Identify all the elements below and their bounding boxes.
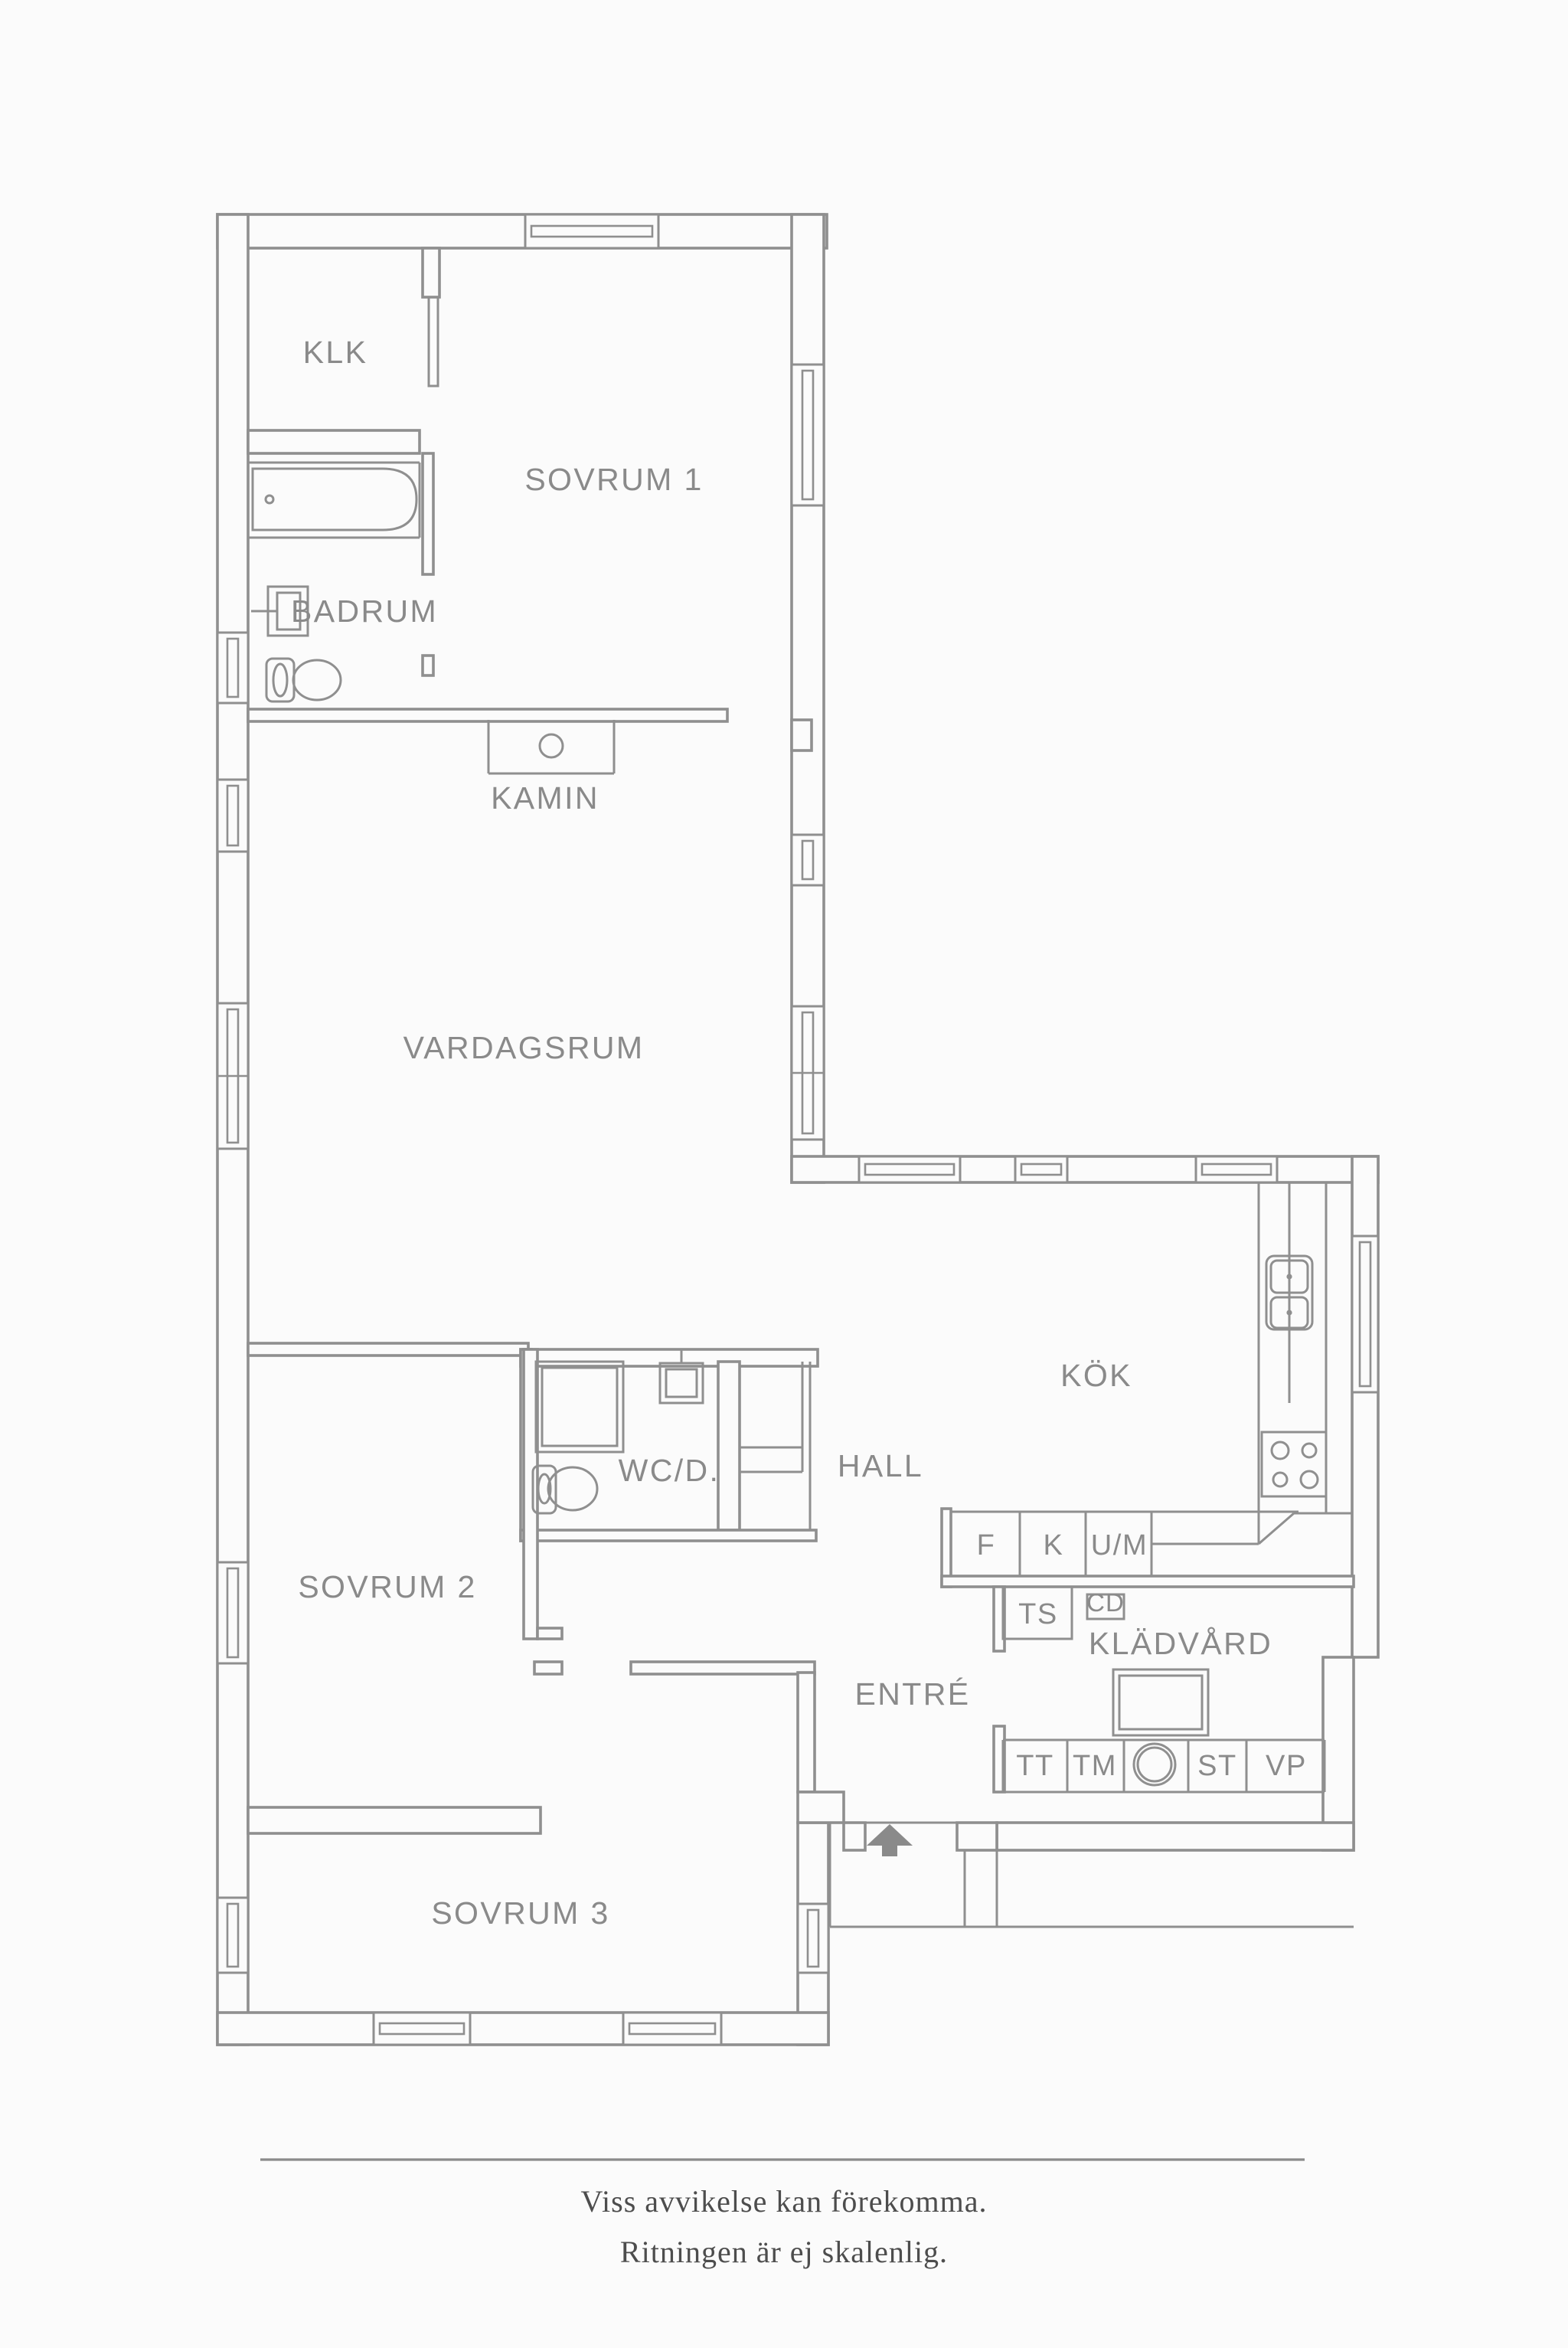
floorplan-drawing: KLK SOVRUM 1 BADRUM KAMIN VARDAGSRUM KÖK… xyxy=(0,0,1568,2348)
fixtures-shape xyxy=(666,1369,697,1397)
windows-shape xyxy=(217,1562,248,1663)
windows-shape xyxy=(525,214,658,248)
footer-note-1: Viss avvikelse kan förekomma. xyxy=(581,2184,988,2219)
windows-shape xyxy=(1196,1156,1277,1182)
walls-shape xyxy=(423,248,439,297)
appliance-label-um: U/M xyxy=(1091,1529,1148,1562)
walls-shape xyxy=(942,1576,1354,1587)
windows-shape xyxy=(217,633,248,703)
walls-shape xyxy=(248,1343,528,1355)
room-label-sovrum2: SOVRUM 2 xyxy=(298,1569,476,1604)
fixtures-shape xyxy=(1301,1471,1318,1488)
fixtures-shape xyxy=(1138,1748,1171,1781)
entrance-arrow-shape xyxy=(867,1824,913,1846)
appliance-label-st: ST xyxy=(1197,1750,1237,1782)
walls-shape xyxy=(997,1823,1354,1850)
windows-shape xyxy=(374,2013,470,2045)
walls-shape xyxy=(844,1823,865,1850)
room-label-kladvard: KLÄDVÅRD xyxy=(1089,1626,1272,1661)
windows-shape xyxy=(859,1156,960,1182)
fixtures-shape xyxy=(1272,1442,1289,1459)
fixtures-shape xyxy=(536,1362,623,1452)
walls-shape xyxy=(423,453,433,574)
appliance-label-cd: CD xyxy=(1086,1588,1125,1617)
fixtures-shape xyxy=(1302,1444,1316,1457)
walls-shape xyxy=(1352,1156,1378,1657)
fixtures-shape xyxy=(540,734,563,757)
footer: Viss avvikelse kan förekomma. Ritningen … xyxy=(260,2160,1305,2269)
windows-shape xyxy=(217,1898,248,1973)
walls-shape xyxy=(217,2013,828,2045)
walls-shape xyxy=(957,1823,997,1850)
room-label-badrum: BADRUM xyxy=(291,594,438,629)
windows-shape xyxy=(792,835,824,885)
walls-shape xyxy=(248,1807,541,1833)
room-label-kok: KÖK xyxy=(1060,1358,1132,1393)
room-label-klk: KLK xyxy=(303,335,368,370)
windows-shape xyxy=(1352,1236,1378,1392)
room-label-wcd: WC/D. xyxy=(619,1453,720,1488)
walls-shape xyxy=(248,709,727,721)
walls-shape xyxy=(537,1628,562,1639)
windows-shape xyxy=(1015,1156,1067,1182)
fixtures-shape xyxy=(1113,1669,1208,1735)
appliance-label-tt: TT xyxy=(1016,1750,1054,1782)
fixtures-shape xyxy=(1259,1513,1294,1544)
fixtures-shape xyxy=(542,1368,617,1446)
walls-shape xyxy=(792,720,812,751)
walls-shape xyxy=(631,1662,815,1674)
fixtures-shape xyxy=(1273,1473,1287,1486)
appliance-label-tm: TM xyxy=(1073,1750,1117,1782)
entrance-arrow xyxy=(867,1824,913,1856)
walls-shape xyxy=(248,430,420,453)
floorplan-page: KLK SOVRUM 1 BADRUM KAMIN VARDAGSRUM KÖK… xyxy=(0,0,1568,2348)
entrance-arrow-shape xyxy=(882,1846,897,1856)
walls-shape xyxy=(1323,1657,1354,1850)
walls-shape xyxy=(798,1673,815,1792)
fixtures-shape xyxy=(273,664,287,696)
fixtures-shape xyxy=(1286,1310,1292,1315)
walls-shape xyxy=(798,1792,844,1823)
fixtures-shape xyxy=(1119,1676,1202,1729)
windows-shape xyxy=(217,780,248,852)
fixtures-shape xyxy=(429,297,438,386)
appliance-label-ts: TS xyxy=(1018,1598,1058,1630)
fixtures-shape xyxy=(253,469,416,530)
walls-shape xyxy=(521,1530,816,1541)
walls-shape xyxy=(217,214,827,248)
walls-shape xyxy=(718,1362,740,1530)
room-label-sovrum1: SOVRUM 1 xyxy=(524,462,703,497)
windows-shape xyxy=(792,365,824,505)
room-label-entre: ENTRÉ xyxy=(855,1676,971,1712)
fixtures-shape xyxy=(266,495,273,503)
appliance-label-k: K xyxy=(1044,1529,1064,1562)
appliance-label-f: F xyxy=(977,1529,996,1562)
fixtures-shape xyxy=(293,660,341,700)
footer-note-2: Ritningen är ej skalenlig. xyxy=(620,2235,948,2269)
room-label-sovrum3: SOVRUM 3 xyxy=(431,1895,609,1931)
windows-shape xyxy=(798,1904,828,1973)
room-label-hall: HALL xyxy=(838,1448,923,1483)
windows-shape xyxy=(623,2013,721,2045)
room-label-kamin: KAMIN xyxy=(491,780,599,816)
walls-shape xyxy=(534,1662,562,1674)
fixtures-shape xyxy=(1262,1432,1326,1496)
fixtures-shape xyxy=(1134,1744,1175,1785)
fixtures-shape xyxy=(1286,1274,1292,1279)
walls-shape xyxy=(423,656,433,675)
room-label-vardagsrum: VARDAGSRUM xyxy=(403,1030,645,1065)
appliance-label-vp: VP xyxy=(1266,1750,1307,1782)
